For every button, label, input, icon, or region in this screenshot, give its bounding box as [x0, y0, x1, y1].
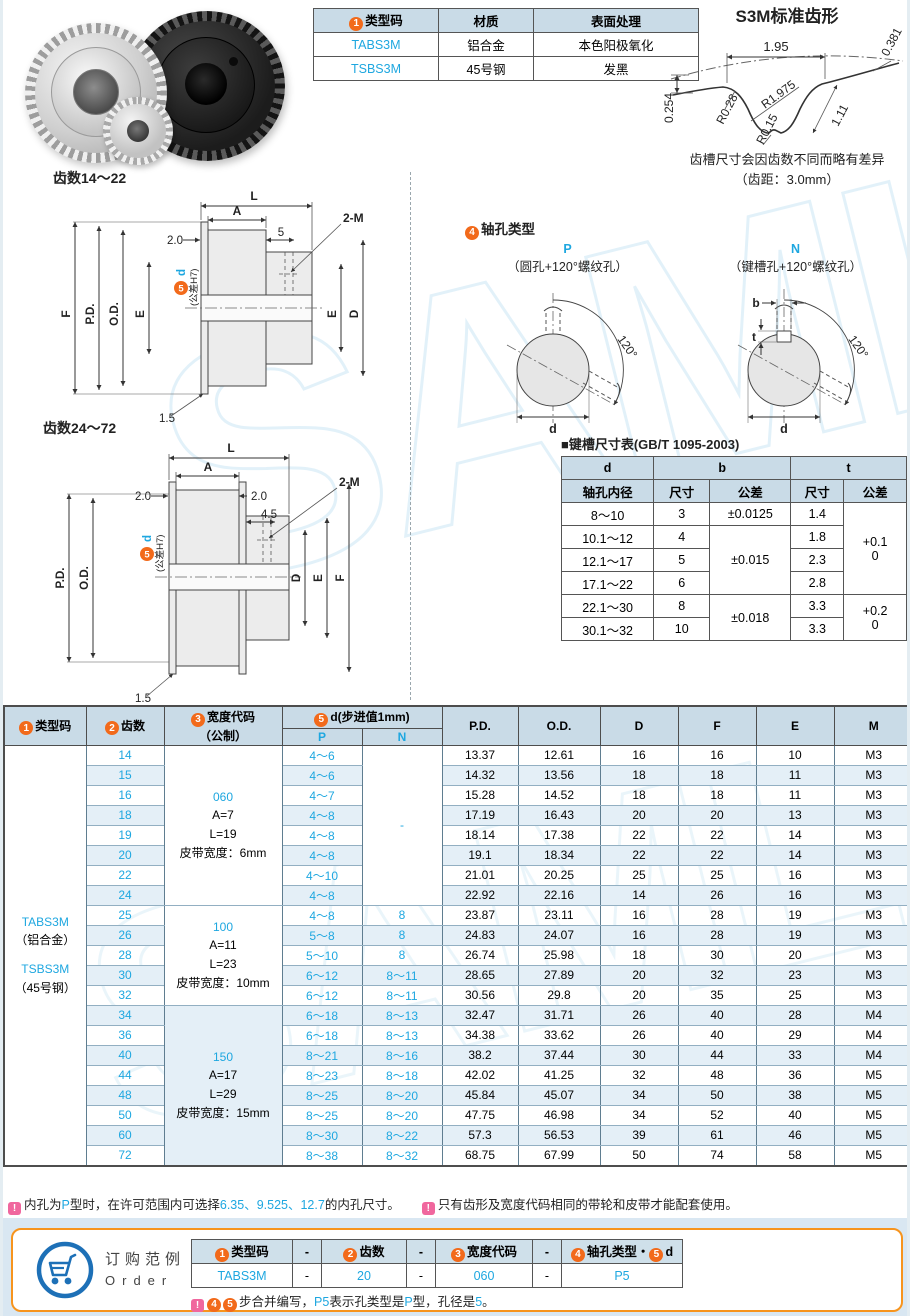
- text-segment: P5: [314, 1295, 329, 1309]
- main-selection-table: 1类型码2齿数3宽度代码（公制）5d(步进值1mm)P.D.O.D.DFEMPN…: [3, 705, 910, 1167]
- value-cell: 33.62: [518, 1025, 600, 1045]
- value-cell: M4: [834, 1025, 910, 1045]
- bore-range-p-cell: 4～8: [282, 805, 362, 825]
- value-cell: 29: [756, 1025, 834, 1045]
- column-header-label: 齿数: [121, 719, 145, 733]
- dim-b: b: [752, 296, 759, 310]
- value-cell: M3: [834, 825, 910, 845]
- catalog-page: SAML SAML 1类型码材质表面处理TABS3M铝合金本色阳极氧化TSBS3…: [0, 0, 910, 1316]
- value-cell: 22.92: [442, 885, 518, 905]
- drawing-big-svg: L A 2.0 2.0 4.5 2-M P.D. O.D.: [43, 438, 383, 708]
- bore-range-n-cell: 8: [362, 925, 442, 945]
- order-table-wrap: 1类型码-2齿数-3宽度代码-4轴孔类型・5dTABS3M-20-060-P5 …: [191, 1239, 683, 1312]
- bore-range-p-cell: 8～25: [282, 1105, 362, 1125]
- value-cell: 14.52: [518, 785, 600, 805]
- dim-1-11: 1.11: [828, 102, 851, 129]
- step-number-badge: 4: [207, 1298, 221, 1312]
- footnote-2: !只有齿形及宽度代码相同的带轮和皮带才能配套使用。: [422, 1198, 738, 1212]
- step-number-badge: 5: [314, 713, 328, 727]
- table-row: 306～128～1128.6527.89203223M3: [4, 965, 910, 985]
- value-cell: 16: [600, 925, 678, 945]
- value-cell: 17.38: [518, 825, 600, 845]
- value-cell: 11: [756, 765, 834, 785]
- value-cell: 20: [678, 805, 756, 825]
- bore-range-n-cell: 8～20: [362, 1105, 442, 1125]
- column-header: d: [562, 457, 654, 480]
- table-row: 1类型码-2齿数-3宽度代码-4轴孔类型・5d: [192, 1240, 683, 1264]
- hole-n-desc: （键槽孔+120°螺纹孔）: [688, 256, 903, 275]
- table-row: 285～10826.7425.98183020M3: [4, 945, 910, 965]
- value-cell: 34: [600, 1085, 678, 1105]
- dim-PD: P.D.: [85, 304, 97, 325]
- table-row: TSBS3M45号钢发黑: [314, 57, 699, 81]
- value-cell: 14: [756, 845, 834, 865]
- tooth-profile-title: S3M标准齿形: [663, 2, 910, 27]
- bore-range-p-cell: 5～10: [282, 945, 362, 965]
- drawing-teeth-14-22: 齿数14～22 L A 2.0 5: [53, 168, 383, 433]
- dim-0-254: 0.254: [663, 93, 676, 123]
- width-code-line: 060: [167, 788, 280, 807]
- step-number-badge: 3: [451, 1248, 465, 1262]
- value-cell: 30: [600, 1045, 678, 1065]
- svg-text:d: d: [142, 535, 154, 542]
- order-value-cell: -: [407, 1264, 436, 1288]
- table-cell: 30.1～32: [562, 618, 654, 641]
- value-cell: 18.14: [442, 825, 518, 845]
- bore-range-n-cell: 8～32: [362, 1145, 442, 1166]
- value-cell: M3: [834, 845, 910, 865]
- value-cell: 40: [678, 1025, 756, 1045]
- type-code-line: （铝合金）: [7, 931, 84, 950]
- dim-F: F: [335, 574, 347, 581]
- width-code-line: A=7: [167, 806, 280, 825]
- table-row: 154～614.3213.56181811M3: [4, 765, 910, 785]
- bore-range-p-cell: 6～12: [282, 965, 362, 985]
- value-cell: 14.32: [442, 765, 518, 785]
- text-segment: 。: [482, 1295, 495, 1309]
- column-header: 尺寸: [791, 480, 844, 503]
- column-header-label: 表面处理: [591, 15, 641, 29]
- width-code-line: L=23: [167, 955, 280, 974]
- tooth-profile-drawing: 1.95 0.254 0.381 R0.28 R1.975 1.11 R0.15: [663, 27, 910, 145]
- order-value-cell: 060: [436, 1264, 533, 1288]
- column-header: 1类型码: [4, 706, 86, 745]
- bore-range-p-cell: 5～8: [282, 925, 362, 945]
- column-header: 1类型码: [314, 9, 439, 33]
- hole-p-drawing: 120° d: [465, 275, 670, 435]
- bore-range-p-cell: 6～18: [282, 1025, 362, 1045]
- value-cell: 39: [600, 1125, 678, 1145]
- table-row: TABS3M-20-060-P5: [192, 1264, 683, 1288]
- order-value-cell: TABS3M: [192, 1264, 293, 1288]
- column-header: 2齿数: [322, 1240, 407, 1264]
- value-cell: 48: [678, 1065, 756, 1085]
- order-example-box: 订购范例 Order 1类型码-2齿数-3宽度代码-4轴孔类型・5dTABS3M…: [11, 1228, 903, 1312]
- value-cell: M4: [834, 1005, 910, 1025]
- column-header: P: [282, 728, 362, 745]
- value-cell: 16: [600, 745, 678, 765]
- column-header: O.D.: [518, 706, 600, 745]
- table-cell: 17.1～22: [562, 572, 654, 595]
- teeth-cell: 16: [86, 785, 164, 805]
- svg-text:d: d: [176, 269, 188, 276]
- value-cell: 20: [600, 985, 678, 1005]
- bore-range-p-cell: 4～6: [282, 745, 362, 765]
- bore-range-n-cell: 8～22: [362, 1125, 442, 1145]
- value-cell: M3: [834, 905, 910, 925]
- value-cell: 20: [756, 945, 834, 965]
- value-cell: 22: [678, 825, 756, 845]
- value-cell: 28: [756, 1005, 834, 1025]
- dim-A: A: [233, 204, 242, 218]
- column-header: 轴孔内径: [562, 480, 654, 503]
- table-cell: 3.3: [791, 618, 844, 641]
- dim-E-left: E: [135, 310, 147, 318]
- value-cell: 26.74: [442, 945, 518, 965]
- order-value-cell: -: [533, 1264, 562, 1288]
- text-segment: 宽度代码: [467, 1245, 517, 1259]
- type-code-line: TSBS3M: [7, 960, 84, 979]
- table-row: 204～819.118.34222214M3: [4, 845, 910, 865]
- step-number-badge: 4: [571, 1248, 585, 1262]
- value-cell: M5: [834, 1125, 910, 1145]
- value-cell: 17.19: [442, 805, 518, 825]
- column-header-label: 类型码: [365, 14, 403, 28]
- teeth-cell: 34: [86, 1005, 164, 1025]
- value-cell: 57.3: [442, 1125, 518, 1145]
- table-cell: 8～10: [562, 503, 654, 526]
- value-cell: 25: [678, 865, 756, 885]
- step-number-badge: 2: [343, 1248, 357, 1262]
- dim-4-5: 4.5: [261, 509, 277, 521]
- bore-dim-label: 5 d (公差H7): [174, 269, 200, 306]
- value-cell: 20.25: [518, 865, 600, 885]
- text-segment: 的内孔尺寸。: [325, 1198, 400, 1212]
- table-row: 1类型码2齿数3宽度代码（公制）5d(步进值1mm)P.D.O.D.DFEM: [4, 706, 910, 728]
- table-cell: 1.4: [791, 503, 844, 526]
- hole-n-label: N: [688, 242, 903, 256]
- value-cell: 13.37: [442, 745, 518, 765]
- product-photo: [11, 5, 303, 167]
- value-cell: 38.2: [442, 1045, 518, 1065]
- table-row: 25100A=11L=23皮带宽度：10mm4～8823.8723.111628…: [4, 905, 910, 925]
- bore-range-n-cell: 8～11: [362, 985, 442, 1005]
- step-number-badge: 5: [223, 1298, 237, 1312]
- svg-text:(公差H7): (公差H7): [188, 269, 200, 306]
- order-value-cell: -: [293, 1264, 322, 1288]
- value-cell: 11: [756, 785, 834, 805]
- table-cell: +0.2 0: [844, 595, 907, 641]
- material-spec-table: 1类型码材质表面处理TABS3M铝合金本色阳极氧化TSBS3M45号钢发黑: [313, 8, 699, 81]
- column-header: 5d(步进值1mm): [282, 706, 442, 728]
- teeth-cell: 32: [86, 985, 164, 1005]
- width-code-line: 皮带宽度：10mm: [167, 974, 280, 993]
- width-code-cell: 060A=7L=19皮带宽度：6mm: [164, 745, 282, 905]
- value-cell: M3: [834, 985, 910, 1005]
- table-row: dbt: [562, 457, 907, 480]
- bore-range-n-cell: 8～11: [362, 965, 442, 985]
- table-cell: 2.8: [791, 572, 844, 595]
- dim-A: A: [204, 460, 213, 474]
- column-header: P.D.: [442, 706, 518, 745]
- column-header: 3宽度代码（公制）: [164, 706, 282, 745]
- table-cell: 2.3: [791, 549, 844, 572]
- value-cell: 31.71: [518, 1005, 600, 1025]
- column-header: N: [362, 728, 442, 745]
- value-cell: 35: [678, 985, 756, 1005]
- table-cell: 22.1～30: [562, 595, 654, 618]
- value-cell: 14: [756, 825, 834, 845]
- text-segment: -: [545, 1245, 549, 1259]
- type-code-line: [7, 950, 84, 960]
- warning-icon: !: [191, 1299, 204, 1312]
- table-row: 265～8824.8324.07162819M3: [4, 925, 910, 945]
- text-segment: 轴孔类型・: [587, 1245, 650, 1259]
- column-header: 公差: [710, 480, 791, 503]
- value-cell: M3: [834, 965, 910, 985]
- svg-text:(公差H7): (公差H7): [154, 535, 166, 572]
- value-cell: 32: [678, 965, 756, 985]
- text-segment: 型时，在许可范围内可选择: [70, 1198, 220, 1212]
- tooth-profile-note2: （齿距：3.0mm）: [663, 170, 910, 190]
- dim-2-0-left: 2.0: [135, 491, 151, 503]
- value-cell: M3: [834, 805, 910, 825]
- dim-d: d: [549, 422, 557, 435]
- column-header-label: 类型码: [35, 719, 71, 733]
- dim-1-95: 1.95: [763, 39, 788, 54]
- footnotes: !内孔为P型时，在许可范围内可选择6.35、9.525、12.7的内孔尺寸。!只…: [8, 1194, 908, 1215]
- value-cell: M3: [834, 745, 910, 765]
- value-cell: M5: [834, 1105, 910, 1125]
- value-cell: 37.44: [518, 1045, 600, 1065]
- bore-range-n-cell: 8: [362, 945, 442, 965]
- teeth-cell: 30: [86, 965, 164, 985]
- text-segment: 6.35、9.525、12.7: [220, 1198, 325, 1212]
- value-cell: 18: [678, 785, 756, 805]
- text-segment: 型，孔径是: [413, 1295, 476, 1309]
- bore-range-p-cell: 6～12: [282, 985, 362, 1005]
- tooth-profile-note1: 齿槽尺寸会因齿数不同而略有差异: [663, 150, 910, 170]
- text-segment: d: [665, 1245, 673, 1259]
- teeth-cell: 15: [86, 765, 164, 785]
- angle-120-label: 120°: [615, 332, 641, 361]
- small-pulley-image: [103, 97, 173, 165]
- value-cell: 40: [678, 1005, 756, 1025]
- dim-OD: O.D.: [109, 302, 121, 326]
- table-cell: 6: [654, 572, 710, 595]
- table-cell: 4: [654, 526, 710, 549]
- text-segment: 类型码: [231, 1245, 269, 1259]
- value-cell: 18: [600, 785, 678, 805]
- column-header-label: d(步进值1mm): [330, 710, 409, 724]
- width-code-line: L=19: [167, 825, 280, 844]
- teeth-cell: 48: [86, 1085, 164, 1105]
- width-code-cell: 100A=11L=23皮带宽度：10mm: [164, 905, 282, 1005]
- bore-range-n-cell: -: [362, 745, 442, 905]
- shaft-hole-section: 4轴孔类型 P （圆孔+120°螺纹孔） 120°: [465, 218, 905, 440]
- drawing-teeth-24-72: 齿数24～72 L A 2.0: [43, 418, 383, 713]
- table-row: 508～258～2047.7546.98345240M5: [4, 1105, 910, 1125]
- order-title-cn: 订购范例: [105, 1248, 185, 1269]
- value-cell: 18: [600, 765, 678, 785]
- dim-D: D: [291, 574, 303, 582]
- table-cell: 45号钢: [439, 57, 534, 81]
- bore-range-p-cell: 8～38: [282, 1145, 362, 1166]
- table-cell: +0.1 0: [844, 503, 907, 595]
- column-header: 1类型码: [192, 1240, 293, 1264]
- step-number-badge: 2: [105, 721, 119, 735]
- value-cell: 16: [600, 905, 678, 925]
- value-cell: 27.89: [518, 965, 600, 985]
- value-cell: 12.61: [518, 745, 600, 765]
- order-title-en: Order: [105, 1273, 185, 1288]
- hole-n-drawing: b t 120° d: [688, 275, 903, 435]
- value-cell: 28: [678, 905, 756, 925]
- bore-range-p-cell: 8～30: [282, 1125, 362, 1145]
- teeth-cell: 24: [86, 885, 164, 905]
- teeth-cell: 36: [86, 1025, 164, 1045]
- table-cell: 3.3: [791, 595, 844, 618]
- table-row: 224～1021.0120.25252516M3: [4, 865, 910, 885]
- bore-range-n-cell: 8～20: [362, 1085, 442, 1105]
- column-header: M: [834, 706, 910, 745]
- bore-range-p-cell: 4～8: [282, 905, 362, 925]
- type-code-cell: TABS3M（铝合金） TSBS3M（45号钢）: [4, 745, 86, 1166]
- column-header: 3宽度代码: [436, 1240, 533, 1264]
- value-cell: 19: [756, 905, 834, 925]
- footnote-1: !内孔为P型时，在许可范围内可选择6.35、9.525、12.7的内孔尺寸。: [8, 1198, 400, 1212]
- step-number-badge: 5: [649, 1248, 663, 1262]
- column-header: b: [654, 457, 791, 480]
- value-cell: 45.07: [518, 1085, 600, 1105]
- column-header: 材质: [439, 9, 534, 33]
- value-cell: 52: [678, 1105, 756, 1125]
- value-cell: 46: [756, 1125, 834, 1145]
- table-cell: ±0.015: [710, 526, 791, 595]
- bore-range-p-cell: 4～7: [282, 785, 362, 805]
- table-row: 1类型码材质表面处理: [314, 9, 699, 33]
- table-cell: 铝合金: [439, 33, 534, 57]
- dim-t: t: [752, 330, 756, 344]
- section-divider: [410, 172, 411, 700]
- step-number-badge: 1: [215, 1248, 229, 1262]
- value-cell: M5: [834, 1085, 910, 1105]
- bore-range-n-cell: 8～13: [362, 1025, 442, 1045]
- hole-type-n: N （键槽孔+120°螺纹孔） b: [688, 242, 903, 440]
- value-cell: M3: [834, 865, 910, 885]
- value-cell: 25: [756, 985, 834, 1005]
- dim-D: D: [349, 310, 361, 318]
- text-segment: 只有齿形及宽度代码相同的带轮和皮带才能配套使用。: [438, 1198, 738, 1212]
- bore-range-n-cell: 8～13: [362, 1005, 442, 1025]
- text-segment: 内孔为: [24, 1198, 62, 1212]
- table-row: 34150A=17L=29皮带宽度：15mm6～188～1332.4731.71…: [4, 1005, 910, 1025]
- bore-range-p-cell: 4～8: [282, 885, 362, 905]
- table-cell: 8: [654, 595, 710, 618]
- text-segment: P: [404, 1295, 412, 1309]
- value-cell: 25: [600, 865, 678, 885]
- value-cell: 10: [756, 745, 834, 765]
- value-cell: 45.84: [442, 1085, 518, 1105]
- text-segment: -: [305, 1245, 309, 1259]
- value-cell: 23.87: [442, 905, 518, 925]
- value-cell: 58: [756, 1145, 834, 1166]
- hole-type-p: P （圆孔+120°螺纹孔） 120°: [465, 242, 670, 440]
- table-row: 448～238～1842.0241.25324836M5: [4, 1065, 910, 1085]
- value-cell: 32: [600, 1065, 678, 1085]
- table-row: TABS3M铝合金本色阳极氧化: [314, 33, 699, 57]
- width-code-line: 皮带宽度：6mm: [167, 844, 280, 863]
- dim-E: E: [313, 574, 325, 582]
- value-cell: 18: [678, 765, 756, 785]
- value-cell: 18.34: [518, 845, 600, 865]
- value-cell: 34.38: [442, 1025, 518, 1045]
- value-cell: M3: [834, 945, 910, 965]
- table-row: 轴孔内径尺寸公差尺寸公差: [562, 480, 907, 503]
- value-cell: 56.53: [518, 1125, 600, 1145]
- value-cell: 21.01: [442, 865, 518, 885]
- dim-r1-975: R1.975: [759, 77, 799, 111]
- type-code-line: （45号钢）: [7, 979, 84, 998]
- value-cell: 34: [600, 1105, 678, 1125]
- value-cell: 23: [756, 965, 834, 985]
- hole-p-desc: （圆孔+120°螺纹孔）: [465, 256, 670, 275]
- drawing-big-title: 齿数24～72: [43, 418, 383, 438]
- bore-dim-label: 5 d (公差H7): [140, 535, 166, 572]
- warning-icon: !: [422, 1202, 435, 1215]
- value-cell: 67.99: [518, 1145, 600, 1166]
- shaft-section-title: 4轴孔类型: [465, 218, 905, 240]
- value-cell: 74: [678, 1145, 756, 1166]
- dim-L: L: [250, 189, 257, 203]
- value-cell: 16: [756, 865, 834, 885]
- value-cell: 24.07: [518, 925, 600, 945]
- value-cell: 32.47: [442, 1005, 518, 1025]
- order-title: 订购范例 Order: [105, 1248, 185, 1288]
- value-cell: 13.56: [518, 765, 600, 785]
- value-cell: 13: [756, 805, 834, 825]
- column-header: -: [293, 1240, 322, 1264]
- value-cell: M3: [834, 785, 910, 805]
- value-cell: 25.98: [518, 945, 600, 965]
- value-cell: 44: [678, 1045, 756, 1065]
- value-cell: 38: [756, 1085, 834, 1105]
- width-code-line: 150: [167, 1048, 280, 1067]
- value-cell: 30: [678, 945, 756, 965]
- value-cell: 20: [600, 805, 678, 825]
- value-cell: 18: [600, 945, 678, 965]
- teeth-cell: 60: [86, 1125, 164, 1145]
- column-header: t: [791, 457, 907, 480]
- value-cell: 19.1: [442, 845, 518, 865]
- order-value-cell: 20: [322, 1264, 407, 1288]
- value-cell: 29.8: [518, 985, 600, 1005]
- column-header: -: [407, 1240, 436, 1264]
- bore-range-n-cell: 8～16: [362, 1045, 442, 1065]
- table-row: 728～388～3268.7567.99507458M5: [4, 1145, 910, 1166]
- text-segment: P: [62, 1198, 70, 1212]
- bore-range-p-cell: 8～25: [282, 1085, 362, 1105]
- type-code-line: TABS3M: [7, 913, 84, 932]
- value-cell: 22.16: [518, 885, 600, 905]
- keyway-table-title: ■键槽尺寸表(GB/T 1095-2003): [561, 434, 907, 453]
- teeth-cell: 28: [86, 945, 164, 965]
- value-cell: 16.43: [518, 805, 600, 825]
- table-row: 488～258～2045.8445.07345038M5: [4, 1085, 910, 1105]
- teeth-cell: 20: [86, 845, 164, 865]
- warning-icon: !: [8, 1202, 21, 1215]
- teeth-cell: 14: [86, 745, 164, 765]
